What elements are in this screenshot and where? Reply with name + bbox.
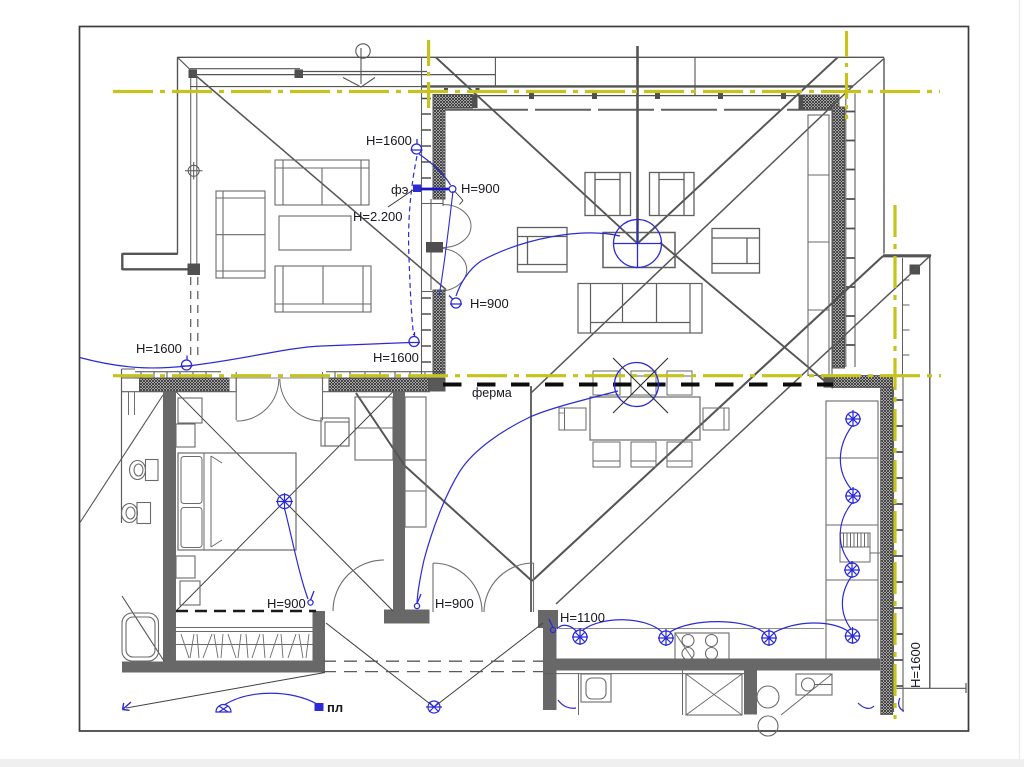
svg-text:ферма: ферма — [472, 386, 512, 400]
svg-text:H=1100: H=1100 — [560, 610, 605, 625]
svg-text:H=900: H=900 — [461, 181, 500, 196]
svg-text:H=900: H=900 — [267, 596, 306, 611]
svg-text:H=1600: H=1600 — [373, 350, 419, 365]
svg-text:H=2.200: H=2.200 — [353, 209, 403, 224]
svg-text:фэ: фэ — [391, 182, 409, 197]
svg-text:H=1600: H=1600 — [908, 642, 923, 688]
svg-text:H=900: H=900 — [470, 296, 509, 311]
svg-text:H=1600: H=1600 — [366, 133, 412, 148]
svg-text:пл: пл — [327, 700, 343, 715]
svg-text:H=900: H=900 — [435, 596, 474, 611]
svg-text:H=1600: H=1600 — [136, 341, 182, 356]
